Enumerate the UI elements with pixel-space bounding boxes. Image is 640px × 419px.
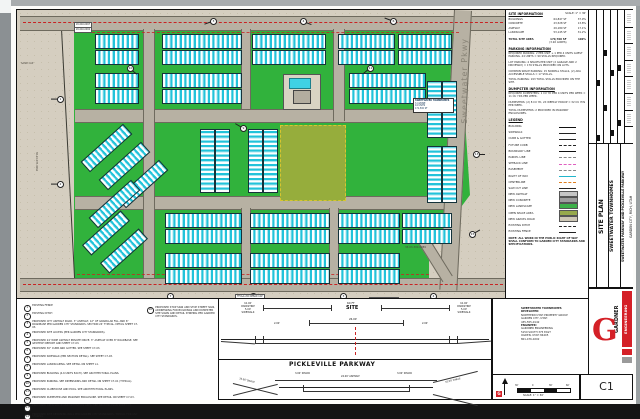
keyed-note: 12PROPOSED DUMPSTER AND MASONRY ENCLOSUR… [24,397,142,404]
pickleville-section: PICKLEVILLE PARKWAY 3.00' SHLDR 24.00' A… [219,359,491,399]
keyed-note-callout: 9 [240,125,247,132]
site-info-table: BUILDINGS64,847 SF37.9%CONCRETE23,528 SF… [509,18,587,44]
legend-label: CURB & GUTTER [509,136,559,140]
keyed-note-callout: 1 [57,96,64,103]
keyed-note-number: 8 [24,364,31,371]
keyed-note-text: PROPOSED CLUBHOUSE AND POOL. SEE ARCHITE… [32,389,113,396]
site-info-label: LANDSCAPE [509,31,541,36]
townhome-building [248,129,263,193]
revision-cell-text [627,80,631,89]
keyed-note-number: 7 [24,356,31,363]
townhome-building [338,50,395,65]
legend-label: BUILDING [509,124,559,128]
logo-accent-2 [622,357,632,363]
townhome-building [402,213,452,228]
keyed-note-callout: 7 [167,293,174,298]
keyed-note: 7PROPOSED SIDEWALK (PER SECTION DETAIL).… [24,356,142,363]
internal-road [20,16,505,31]
road-name-label: Sweetwater Pkwy [460,38,469,124]
pickleville-title: PICKLEVILLE PARKWAY [289,361,375,368]
revision-column-line [610,10,611,143]
revision-tick [604,105,607,111]
legend-sample-icon [559,145,576,146]
legend-sample-icon [559,176,576,177]
title-block: SITE PLAN SWEETWATER TOWNHOMES SWEETWATE… [588,143,633,288]
legend-sample-icon [559,139,576,140]
revision-cell-line [624,93,633,94]
site-info-scale: SCALE: 1" = 30' [565,12,586,16]
townhome-building [95,73,139,88]
keyed-note-number: 10 [24,381,31,388]
right-notes-column: SITE INFORMATION SCALE: 1" = 30' BUILDIN… [505,10,588,298]
legend-label: FUTURE CURB [509,143,559,147]
shoulder-label-left: 3.00' SHLDR [295,372,310,375]
keyed-note-number: 1 [24,305,31,312]
keyed-note-number: 11 [24,389,31,396]
site-info-row: LANDSCAPE53,145 SF31.2% [509,31,587,36]
townhome-building [162,34,242,49]
townhome-building [165,253,242,268]
legend-sample-icon [559,182,576,183]
keyed-note-text: PROPOSED SIDEWALK (PER SECTION DETAIL). … [32,356,113,363]
site-info-area: 170,700 SF(3.92 ACRES) [541,38,567,44]
legend-label: NEW GRAVEL ROAD [509,217,559,221]
keyed-note-callout: 4 [430,293,437,298]
legend-sample-icon [559,197,578,203]
revision-tick [618,65,621,71]
section-centerline [355,327,356,355]
legend-label: SAW CUT LINE [509,186,559,190]
townhome-building [162,50,242,65]
scale-bar-graphic [517,388,571,393]
townhome-building [252,50,326,65]
section-center-dim: 26.00' [349,318,357,321]
townhome-building [250,269,330,284]
keyed-notes-panel: 1EXISTING FENCE2EXISTING DITCH3PROPOSED … [17,298,218,400]
townhome-building [162,89,242,104]
parking-paragraph: COMMON SPACE PARKING: 15 NORMAL STALLS, … [509,70,587,76]
road-section-panel: 60 FT SITE 26.00' 10.00'PARKSTRIP5.00'SI… [218,298,492,400]
plan-text-label: TFC&G 200 REBAR CAP [235,294,265,298]
road-centerline [23,284,503,285]
legend-sample-icon [559,151,576,152]
keyed-note: 9PROPOSED BUILDING (4-6 UNITS EACH). SEE… [24,373,142,380]
parkstrip-line: SIDEWALK [229,311,267,314]
revision-tick [618,120,621,126]
title-city: GARDEN CITY, RICH, UTAH [629,144,634,289]
scale-tick-label: 30' [549,384,552,387]
keyed-note-text: PROPOSED OPEN SPACE AND DETENTION AREA. … [32,405,131,412]
keyed-note-text: EXISTING FENCE [32,305,53,312]
townhome-building [442,146,457,203]
keyed-note-number: 12 [24,397,31,404]
parking-paragraph: TOTAL PARKING: 193 TOTAL STALLS PROVIDED… [509,78,587,84]
revision-tick [597,135,600,141]
townhome-building [263,129,278,193]
dumpster-info-title: DUMPSTER INFORMATION [509,87,587,91]
legend-sample-icon [559,127,576,128]
edge-dim-right: 2.00' [422,322,428,325]
townhome-building [338,253,400,268]
legend-sample-icon [559,191,578,197]
keyed-note-number: 16 [147,307,154,314]
info-box-line: 171,500 SF [415,108,452,111]
townhome-building [338,34,395,49]
revision-cell-line [624,60,633,61]
keyed-note: 1EXISTING FENCE [24,305,142,312]
keyed-note-callout: 3 [210,18,217,25]
legend-sample-icon [559,170,576,171]
legend-label: EXISTING DITCH [509,223,559,227]
legend-label: OPEN SPACE AREA [509,211,559,215]
keyed-note-text: EXISTING DITCH [32,313,52,320]
site-info-pct: 31.2% [567,31,587,36]
title-sheet-name: SITE PLAN [598,144,608,289]
townhome-building [250,229,330,244]
swale-label-left: 10.00' SWALE [239,377,255,384]
revision-tick [611,130,614,136]
site-info-label: TOTAL SITE AREA [509,38,541,44]
legend-sample-icon [559,157,576,158]
revision-cell-text [627,64,631,73]
keyed-note-text: PROPOSED BUILDING (4-6 UNITS EACH). SEE … [32,373,119,380]
keyed-note: 6PROPOSED 30" CURB AND GUTTER. SEE SHEET… [24,348,142,355]
site-info-title: SITE INFORMATION [509,12,543,16]
clubhouse-building [293,90,311,104]
keyed-note: 13PROPOSED OPEN SPACE AND DETENTION AREA… [24,405,142,412]
keyed-note-number: 5 [24,340,31,347]
site-entry-section: 60 FT SITE 26.00' 10.00'PARKSTRIP5.00'SI… [219,299,491,360]
keyed-note-callout: 10 [127,65,134,72]
legend-label: CENTERLINE [509,180,559,184]
corner-notch [0,0,11,13]
total-acres: (3.92 ACRES) [541,41,567,44]
keyed-note: 3PROPOSED CITY ASPHALT ROAD. 3" ASPHALT,… [24,321,142,330]
keyed-note: 16PROPOSED STOP SIGN AND STOP STREET SIG… [147,307,215,319]
title-location: SWEETWATER PARKWAY AND PICKLEVILLE PARKW… [622,144,629,289]
townhome-building [200,129,215,193]
sheet-number-cell: C1 [580,374,633,400]
road-centerline [23,22,503,23]
townhome-building [95,50,139,65]
revision-cell-line [624,76,633,77]
keyed-note-callout: 13 [473,151,480,158]
legend-label: PARCEL LINE [509,155,559,159]
keyed-note-text: PROPOSED DUMPSTER AND MASONRY ENCLOSURE.… [32,397,134,404]
legend-label: NEW CONCRETE [509,198,559,202]
keyed-note: 8PROPOSED LANDSCAPING. SEE DETAIL ON SHE… [24,364,142,371]
keyed-note-callout: 6 [390,18,397,25]
scale-tick-label: 60' [566,384,569,387]
dumpster-info-paragraphs: REQUIRED DUMPSTERS: 1 CU YD PER 4 UNITS … [509,92,587,115]
townhome-building [95,34,139,49]
parkstrip-line: SIDEWALK [445,311,483,314]
revision-cell-text [627,14,631,23]
townhome-building [398,50,452,65]
screenshot-root: Sweetwater Pkwy SWEETWATER TOWNHOMES3.4 … [0,0,640,419]
parking-info-title: PARKING INFORMATION [509,47,587,51]
plan-text-label: TFC&G 200 REBAR CAP [369,297,399,298]
revision-column-line [596,10,597,143]
plan-text-label: 38-03-300-0089 [405,246,426,249]
townhome-building [165,229,242,244]
legend-sample-icon [559,188,576,189]
scale-bar-segment [531,389,544,392]
keyed-note-side: 16PROPOSED STOP SIGN AND STOP STREET SIG… [147,307,215,320]
keyed-note-callout: 11 [367,65,374,72]
title-project-name: SWEETWATER TOWNHOMES [610,144,619,289]
townhome-building [252,34,326,49]
keyed-note-number: 4 [24,332,31,339]
keyed-note-number: 9 [24,373,31,380]
left-boundary-line [61,29,75,279]
legend-label: NEW ASPHALT [509,192,559,196]
keyed-note-text: PROPOSED STOP SIGN AND STOP STREET SIGN,… [155,307,215,319]
townhome-building [162,73,242,88]
legend-sample-icon [559,226,576,227]
revision-cell-text [627,114,631,123]
townhome-building [165,213,242,228]
keyed-note-text: PROPOSED SITE ACCESS (PER GARDEN CITY ST… [32,332,105,339]
scale-bar-cell: G 30'030'60' SCALE: 1" = 30' [492,374,580,400]
asphalt-label: 24.00' ASPHALT [341,375,360,378]
legend: BUILDINGSIDEWALKCURB & GUTTERFUTURE CURB… [509,123,587,234]
legend-label: SETBACK LINE [509,161,559,165]
legend-label: BOUNDARY LINE [509,149,559,153]
townhome-building [427,146,442,203]
left-strip [0,6,11,404]
scale-caption: SCALE: 1" = 30' [523,394,544,397]
general-note: NOTE: ALL WORK IN THE PUBLIC RIGHT OF WA… [509,237,587,246]
keyed-note: 14PROPOSED SITE RETAINING WALL PER GARDE… [24,414,142,419]
townhome-building [250,213,330,228]
parkstrip-label-left: 10.00'PARKSTRIP5.00'SIDEWALK [229,302,267,314]
shoulder-label-right: 3.00' SHLDR [397,372,412,375]
contact-line: 801-476-0202 [493,338,588,341]
site-plan-drawing: Sweetwater Pkwy SWEETWATER TOWNHOMES3.4 … [17,10,505,298]
keyed-note-callout: 3 [340,293,347,298]
revision-cell-text [627,31,631,40]
townhome-building [250,253,330,268]
scale-tick-label: 0 [532,384,533,387]
north-arrow-icon [504,383,505,395]
mini-logo-icon: G [496,391,502,397]
scale-bar-segment [557,389,570,392]
keyed-note-number: 14 [24,414,31,419]
sheet-number: C1 [599,380,614,393]
legend-row: EXISTING FENCE [509,228,587,234]
legend-sample-icon [559,133,576,134]
north-arrow-head-icon [502,378,508,384]
parking-paragraph: REQUIRED PARKING: 2 PER UNIT + 1 PER 4 U… [509,52,587,58]
keyed-note-number: 13 [24,405,31,412]
site-info-total: TOTAL SITE AREA170,700 SF(3.92 ACRES)100… [509,38,587,44]
keyed-note-text: PROPOSED 30" CURB AND GUTTER. SEE SHEET … [32,348,100,355]
revision-cell-line [624,126,633,127]
keyed-note-number: 3 [24,321,31,328]
townhome-building [349,73,426,88]
site-info-area: 53,145 SF [541,31,567,36]
townhome-building [398,34,452,49]
scale-bar-segment [518,389,531,392]
townhome-building [402,229,452,244]
keyed-note-text: PROPOSED CITY ASPHALT ROAD. 3" ASPHALT, … [32,321,142,330]
dumpster-paragraph: REQUIRED DUMPSTERS: 1 CU YD PER 4 UNITS … [509,92,587,98]
legend-label: SIDEWALK [509,130,559,134]
contact-info-block: SWEETWATER TOWNHOMESDEVELOPER:NORTHERN U… [492,298,588,374]
legend-title: LEGEND [509,118,587,122]
plan-text-label: SAND CAP [21,62,33,65]
revision-cell-text [627,97,631,106]
edge-dim-left: 2.00' [274,322,280,325]
keyed-note: 4PROPOSED SITE ACCESS (PER GARDEN CITY S… [24,332,142,339]
logo-accent-1 [622,349,632,355]
scale-bar-segment [544,389,557,392]
parkstrip-label-right: 10.00'PARKSTRIP5.00'SIDEWALK [445,302,483,314]
townhome-building [338,213,400,228]
legend-sample-icon [559,203,578,209]
logo-word-engineering: ENGINEERING [623,292,631,346]
engineering-logo-block: ENGINEERING GARDNER G [588,288,633,374]
section-site-label: SITE [346,305,358,311]
legend-sample-icon [559,210,578,216]
keyed-note-number: 2 [24,313,31,320]
legend-label: RIGHT OF WAY [509,174,559,178]
revision-column-line [603,10,604,143]
legend-label: EASEMENT [509,167,559,171]
plan-text-label: 38-20-035-0062 [35,152,38,171]
keyed-note: 2EXISTING DITCH [24,313,142,320]
legend-sample-icon [559,232,576,233]
keyed-note-number: 6 [24,348,31,355]
scale-tick-label: 30' [515,384,518,387]
legend-label: NEW LANDSCAPE [509,204,559,208]
keyed-note: 11PROPOSED CLUBHOUSE AND POOL. SEE ARCHI… [24,389,142,396]
townhome-building [338,269,400,284]
revision-cell-line [624,110,633,111]
dumpster-paragraph: DUMPSTERS: (2) 8 CU YD, 2X WEEKLY PICKUP… [509,101,587,107]
revision-tick [611,70,614,76]
legend-sample-icon [559,164,576,165]
keyed-note-text: PROPOSED LANDSCAPING. SEE DETAIL ON SHEE… [32,364,99,371]
open-space-park [280,125,346,201]
keyed-note-callout: 2 [57,181,64,188]
townhome-building [165,269,242,284]
parking-paragraph: LOT PARKING: 4 SPACES PER UNIT (2 GARAGE… [509,61,587,67]
keyed-note-text: PROPOSED PARKING. SEE DIMENSIONS AND DET… [32,381,132,388]
logo-g-mark: G [592,313,618,348]
keyed-note-text: PROPOSED 24' WIDE ASPHALT PRIVATE DRIVE.… [32,340,142,347]
revision-cell-line [624,43,633,44]
legend-sample-icon [559,216,578,222]
setback-line [77,32,459,33]
keyed-note: 10PROPOSED PARKING. SEE DIMENSIONS AND D… [24,381,142,388]
townhome-building [338,229,400,244]
plan-text-label: 20-040-0062 [74,27,92,33]
parking-info-paragraphs: REQUIRED PARKING: 2 PER UNIT + 1 PER 4 U… [509,52,587,84]
revision-table [588,10,633,143]
keyed-note: 5PROPOSED 24' WIDE ASPHALT PRIVATE DRIVE… [24,340,142,347]
pool [289,78,311,89]
keyed-notes-list: 1EXISTING FENCE2EXISTING DITCH3PROPOSED … [24,305,142,419]
site-info-pct: 100% [567,38,587,44]
keyed-note-text: PROPOSED SITE RETAINING WALL PER GARDEN … [32,414,142,419]
internal-road [241,29,251,109]
internal-road [75,109,460,123]
revision-cell-line [624,27,633,28]
revision-tick [604,50,607,56]
dumpster-paragraph: TOTAL DUMPSTERS: 2 PROVIDED IN MASONRY E… [509,109,587,115]
keyed-note-callout: 4 [300,18,307,25]
revision-cell-text [627,47,631,56]
revision-tick [597,80,600,86]
keyed-note-callout: 15 [469,231,476,238]
legend-label: EXISTING FENCE [509,229,559,233]
townhome-building [95,89,139,104]
right-sliver [636,6,640,404]
plan-info-box: SWEETWATER TOWNHOMES3.4 ZONE44 UNITS171,… [413,98,454,113]
townhome-building [215,129,230,193]
